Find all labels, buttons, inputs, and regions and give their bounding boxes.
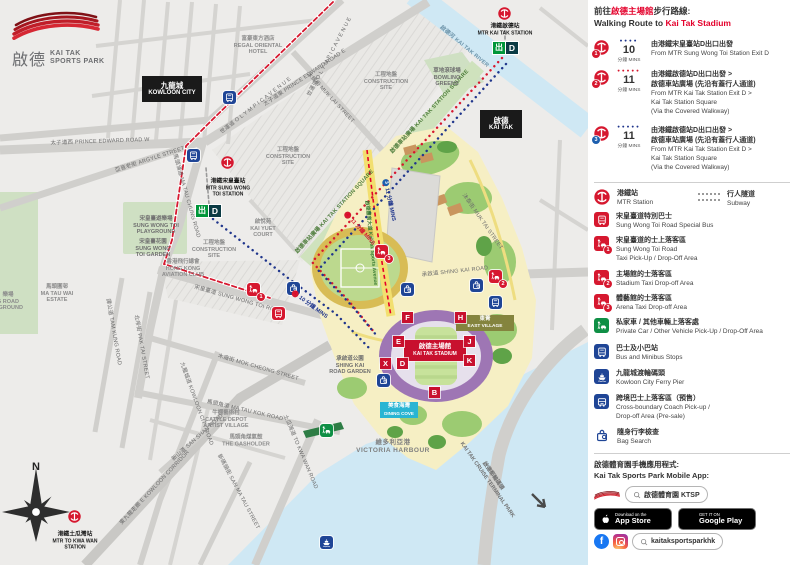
label-line: KAI TAK STADIUM <box>404 351 466 358</box>
gate-k: K <box>464 355 475 366</box>
exit-letter: D <box>209 204 222 218</box>
route-description: 由港鐵宋皇臺站D出口出發 From MTR Sung Wong Toi Stat… <box>651 40 769 59</box>
place-label: 宋皇臺花園 SUNG WONG TOI GARDEN <box>135 239 170 259</box>
map: 啟德 KAI TAK SPORTS PARK 九龍城 KOWLOON CITY … <box>0 0 588 565</box>
place-label: 馬頭角煤氣鼓 THE GASHOLDER <box>222 434 270 447</box>
social-search-text: kaitaksportsparkhk <box>651 538 715 545</box>
badge-text: Download on theApp Store <box>615 513 651 526</box>
legend-text: 隨身行李檢查Bag Search <box>617 428 659 447</box>
label-line: KOWLOON CITY <box>142 90 202 98</box>
divider <box>594 453 790 454</box>
search-icon <box>640 538 648 546</box>
exit-zh: 出 <box>492 41 506 55</box>
google-play-badge[interactable]: GET IT ONGoogle Play <box>678 508 756 530</box>
legend-ferry: 九龍城渡輪碼頭Kowloon City Ferry Pier <box>594 369 684 388</box>
label-line: 九龍城渡輪碼頭 <box>616 369 684 379</box>
label-line: 隨身行李檢查 <box>617 428 659 438</box>
label-line: 啟德體育園手機應用程式: <box>594 459 709 470</box>
taxi-2-badge: 2 <box>499 280 507 288</box>
exit-zh: 出 <box>195 204 209 218</box>
route-icon: 3 <box>594 126 611 146</box>
ktsp-mini-logo-icon <box>594 490 620 500</box>
label-line: Kowloon City Ferry Pier <box>616 379 684 388</box>
bag-search-icon <box>401 283 414 296</box>
gate-f: F <box>402 312 413 323</box>
route-2-badge: 2 <box>592 80 600 88</box>
app-section-title: 啟德體育園手機應用程式: Kai Tak Sports Park Mobile … <box>594 459 709 482</box>
label-line: Bus and Minibus Stops <box>616 354 682 363</box>
label-line: MTR TO KWA WAN STATION <box>53 538 98 550</box>
legend-mtr: 港鐵站MTR Station 行人隧道Subway <box>594 189 797 208</box>
place-label: 草地滾球場 BOWLING GREENS <box>433 68 461 88</box>
taxi-area-2-icon: 2 <box>594 270 609 285</box>
compass-north-label: N <box>32 461 40 473</box>
label-line: Arena Taxi Drop-off Area <box>616 304 687 313</box>
label-line: 前往 <box>594 6 611 16</box>
store-badges: Download on theApp Store GET IT ONGoogle… <box>594 508 756 530</box>
walking-route-1: 1 ●●●● 10 分鐘 MINS 由港鐵宋皇臺站D出口出發 From MTR … <box>594 40 769 63</box>
label-line: Subway <box>727 200 755 209</box>
gate-b: B <box>429 387 440 398</box>
legend-text: 宋皇臺道的士上落客區Sung Wong Toi Road Taxi Pick-U… <box>616 236 698 263</box>
mtr-sung-wong-toi-label: 港鐵宋皇臺站MTR SUNG WONG TOI STATION <box>206 179 250 198</box>
special-bus-icon <box>594 212 609 227</box>
mtr-to-kwa-wan-label: 港鐵土瓜灣站MTR TO KWA WAN STATION <box>53 532 98 551</box>
label-line: 啟德主場館 <box>611 6 654 16</box>
cross-boundary-coach-icon <box>594 394 609 409</box>
label-line: Sung Wong Toi Road Special Bus <box>616 222 713 231</box>
ktsp-logo: 啟德 KAI TAK SPORTS PARK <box>12 10 122 70</box>
gate-e: E <box>393 336 404 347</box>
app-store-badge[interactable]: Download on theApp Store <box>594 508 672 530</box>
gate-d: D <box>397 358 408 369</box>
label-line: 港鐵宋皇臺站 <box>206 179 250 186</box>
label-line: Kai Tak Sports Park Mobile App: <box>594 470 709 481</box>
label-line: Sung Wong Toi Road Taxi Pick-Up / Drop-O… <box>616 246 698 264</box>
private-car-pickup-icon <box>320 424 333 437</box>
mtr-icon <box>68 510 81 523</box>
route-1-badge: 1 <box>592 50 600 58</box>
walking-route-2: 2 ●●●●● 11 分鐘 MINS 由港鐵啟德站D出口出發 > 啟德車站廣場 … <box>594 70 756 117</box>
legend-taxi-3: 3 體藝館的士落客區Arena Taxi Drop-off Area <box>594 294 687 313</box>
place-label: 宋皇臺遊樂場 SUNG WONG TOI PLAYGROUND <box>133 216 179 236</box>
route-en: From MTR Kai Tak Station Exit D > Kai Ta… <box>651 90 756 116</box>
exit-letter: D <box>506 41 519 55</box>
dining-cove-label: 美食海灣 DINING COVE <box>380 402 418 418</box>
place-label: 維多利亞港 VICTORIA HARBOUR <box>356 439 430 455</box>
route-time: ●●●●● 11 分鐘 MINS <box>611 69 647 93</box>
taxi-2-badge: 2 <box>604 280 612 288</box>
legend-taxi-1: 1 宋皇臺道的士上落客區Sung Wong Toi Road Taxi Pick… <box>594 236 698 263</box>
label-line: 美食海灣 <box>382 403 416 411</box>
info-panel: 前往啟德主場館步行路線: Walking Route to Kai Tak St… <box>588 0 799 565</box>
route-minutes: 10 <box>611 44 647 57</box>
bus-stop-icon <box>594 344 609 359</box>
ktsp-search-text: 啟德體育園 KTSP <box>644 490 700 500</box>
route-time: ●●●● 10 分鐘 MINS <box>611 39 647 63</box>
gate-h: H <box>455 312 466 323</box>
label-line: 私家車 / 其他車輛上落客處 <box>616 318 763 328</box>
taxi-area-3-icon: 3 <box>594 294 609 309</box>
label-line: 港鐵站 <box>617 189 653 199</box>
gate-j: J <box>464 336 475 347</box>
legend-text: 體藝館的士落客區Arena Taxi Drop-off Area <box>616 294 687 313</box>
label-line: App Store <box>615 517 651 525</box>
route-minutes: 11 <box>611 74 647 87</box>
route-3-badge: 3 <box>382 178 390 186</box>
kowloon-city-box: 九龍城 KOWLOON CITY <box>142 76 202 102</box>
label-line: Stadium Taxi Drop-off Area <box>616 280 693 289</box>
label-line: 港鐵土瓜灣站 <box>53 532 98 539</box>
route-en: From MTR Kai Tak Station Exit D > Kai Ta… <box>651 146 756 172</box>
legend-text: 跨境巴士上落客區（預售）Cross-boundary Coach Pick-up… <box>616 394 710 421</box>
exit-d-badge: 出D <box>195 204 222 218</box>
route-icon: 1 <box>594 40 611 60</box>
place-label: 工程地盤 CONSTRUCTION SITE <box>364 72 408 92</box>
route-description: 由港鐵啟德站D出口出發 > 啟德車站廣場 (先沿有蓋行人通道) From MTR… <box>651 126 756 173</box>
brand-zh: 啟德 <box>12 46 46 70</box>
label-line: 步行路線: <box>654 6 691 16</box>
legend-bag-search: 隨身行李檢查Bag Search <box>594 428 659 447</box>
social-search-pill[interactable]: kaitaksportsparkhk <box>632 533 723 550</box>
label-line: 主場館的士落客區 <box>616 270 693 280</box>
title-en: Walking Route to Kai Tak Stadium <box>594 18 731 30</box>
label-line: 港鐵啟德站 <box>478 24 533 31</box>
label-line: KAI TAK <box>480 125 522 133</box>
label-line: 巴士及小巴站 <box>616 344 682 354</box>
ferry-pier-icon <box>320 536 333 549</box>
legend-text: 九龍城渡輪碼頭Kowloon City Ferry Pier <box>616 369 684 388</box>
place-label: 工程地盤 CONSTRUCTION SITE <box>266 147 310 167</box>
special-bus-icon <box>272 307 285 320</box>
label-line: MTR KAI TAK STATION <box>478 30 533 36</box>
label-line: MTR SUNG WONG TOI STATION <box>206 185 250 197</box>
ktsp-app-row: 啟德體育園 KTSP <box>594 486 708 503</box>
route-zh: 由港鐵宋皇臺站D出口出發 <box>651 40 769 50</box>
title-zh: 前往啟德主場館步行路線: <box>594 6 731 18</box>
legend-bus-stops: 巴士及小巴站Bus and Minibus Stops <box>594 344 682 363</box>
place-label: 牛棚藝術村 CATTLE DEPOT ARTIST VILLAGE <box>203 410 248 430</box>
label-line: 啟德主場館 <box>404 343 466 351</box>
apple-icon <box>600 514 611 525</box>
kai-tak-box: 啟德 KAI TAK <box>480 110 522 138</box>
mtr-icon <box>594 189 610 205</box>
place-label: 工程地盤 CONSTRUCTION SITE <box>192 240 236 260</box>
route-time: ●●●●● 11 分鐘 MINS <box>611 125 647 149</box>
legend-private-car: 私家車 / 其他車輛上落客處Private Car / Other Vehicl… <box>594 318 797 337</box>
badge-text: GET IT ONGoogle Play <box>699 513 742 526</box>
legend-coach: 跨境巴士上落客區（預售）Cross-boundary Coach Pick-up… <box>594 394 710 421</box>
place-label: 富豪東方酒店 REGAL ORIENTAL HOTEL <box>234 36 282 56</box>
place-label: 啟悅苑 KAI YUET COURT <box>250 219 276 239</box>
route-unit: 分鐘 MINS <box>611 56 647 63</box>
mtr-kai-tak-label: 港鐵啟德站MTR KAI TAK STATION <box>478 24 533 37</box>
facebook-icon[interactable]: f <box>594 534 609 549</box>
taxi-3-badge: 3 <box>604 304 612 312</box>
legend-subway: 行人隧道Subway <box>698 190 755 209</box>
taxi-1-badge: 1 <box>604 246 612 254</box>
route-3-badge: 3 <box>592 136 600 144</box>
label-line: 跨境巴士上落客區（預售） <box>616 394 710 404</box>
legend-text: 港鐵站MTR Station <box>617 189 653 208</box>
kai-tak-stadium-label: 啟德主場館 KAI TAK STADIUM <box>404 340 466 361</box>
label-line: Cross-boundary Coach Pick-up / Drop-off … <box>616 404 710 422</box>
walking-route-3: 3 ●●●●● 11 分鐘 MINS 由港鐵啟德站D出口出發 > 啟德車站廣場 … <box>594 126 756 173</box>
label-line: 行人隧道 <box>727 190 755 200</box>
bag-search-icon <box>377 374 390 387</box>
legend-taxi-2: 2 主場館的士落客區Stadium Taxi Drop-off Area <box>594 270 693 289</box>
brand-en: KAI TAK SPORTS PARK <box>50 50 104 67</box>
mtr-icon <box>221 156 234 169</box>
route-zh: 由港鐵啟德站D出口出發 > 啟德車站廣場 (先沿有蓋行人通道) <box>651 70 756 90</box>
route-unit: 分鐘 MINS <box>611 86 647 93</box>
label-line: DINING COVE <box>382 411 416 417</box>
label-line: 啟德 <box>480 116 522 125</box>
label-line: EAST VILLAGE <box>458 324 512 331</box>
divider <box>594 182 790 183</box>
route-zh: 由港鐵啟德站D出口出發 > 啟德車站廣場 (先沿有蓋行人通道) <box>651 126 756 146</box>
legend-text: 私家車 / 其他車輛上落客處Private Car / Other Vehicl… <box>616 318 763 337</box>
place-label: 香港飛行總會 HONG KONG AVIATION CLUB <box>162 259 204 279</box>
place-label: 馬頭圍邨 MA TAU WAI ESTATE <box>41 284 74 304</box>
instagram-icon[interactable] <box>613 534 628 549</box>
google-play-icon <box>684 514 695 525</box>
label-line: 宋皇臺道的士上落客區 <box>616 236 698 246</box>
label-line: Google Play <box>699 517 742 525</box>
label-line: MTR Station <box>617 199 653 208</box>
route-minutes: 11 <box>611 130 647 143</box>
bag-search-icon <box>594 428 610 444</box>
label-line: 九龍城 <box>142 81 202 90</box>
subway-dotted-line <box>698 193 720 205</box>
taxi-3-badge: 3 <box>385 255 393 263</box>
ktsp-search-pill[interactable]: 啟德體育園 KTSP <box>625 486 708 503</box>
place-label: 樂場 G ROAD N GROUND <box>0 292 23 312</box>
bag-search-icon <box>470 279 483 292</box>
ktsp-swoosh-icon <box>12 10 100 40</box>
label-line: 東菁 <box>458 316 512 324</box>
route-en: From MTR Sung Wong Toi Station Exit D <box>651 50 769 59</box>
legend-text: 主場館的士落客區Stadium Taxi Drop-off Area <box>616 270 693 289</box>
label-line: Bag Search <box>617 438 659 447</box>
taxi-1-badge: 1 <box>257 293 265 301</box>
route-icon: 2 <box>594 70 611 90</box>
label-line: 體藝館的士落客區 <box>616 294 687 304</box>
bus-stop-icon <box>489 296 502 309</box>
mtr-icon <box>498 7 511 20</box>
route-unit: 分鐘 MINS <box>611 142 647 149</box>
gate-x: X <box>380 358 391 369</box>
legend-text: 宋皇臺道特別巴士Sung Wong Toi Road Special Bus <box>616 212 713 231</box>
ferry-pier-icon <box>594 369 609 384</box>
exit-d-badge: 出D <box>492 41 519 55</box>
label-line: Walking Route to <box>594 18 665 28</box>
search-icon <box>633 491 641 499</box>
legend-text: 巴士及小巴站Bus and Minibus Stops <box>616 344 682 363</box>
bus-stop-icon <box>223 91 236 104</box>
bus-stop-icon <box>187 149 200 162</box>
label-line: Kai Tak Stadium <box>665 18 731 28</box>
legend-text: 行人隧道Subway <box>727 190 755 209</box>
place-label: 承啟道公園 SHING KAI ROAD GARDEN <box>329 356 371 376</box>
label-line: Private Car / Other Vehicle Pick-Up / Dr… <box>616 328 763 337</box>
panel-title: 前往啟德主場館步行路線: Walking Route to Kai Tak St… <box>594 6 731 30</box>
private-car-pickup-icon <box>594 318 609 333</box>
label-line: 宋皇臺道特別巴士 <box>616 212 713 222</box>
legend-special-bus: 宋皇臺道特別巴士Sung Wong Toi Road Special Bus <box>594 212 713 231</box>
taxi-area-1-icon: 1 <box>594 236 609 251</box>
poster: 啟德 KAI TAK SPORTS PARK 九龍城 KOWLOON CITY … <box>0 0 799 565</box>
social-row: f kaitaksportsparkhk <box>594 533 723 550</box>
route-description: 由港鐵啟德站D出口出發 > 啟德車站廣場 (先沿有蓋行人通道) From MTR… <box>651 70 756 117</box>
